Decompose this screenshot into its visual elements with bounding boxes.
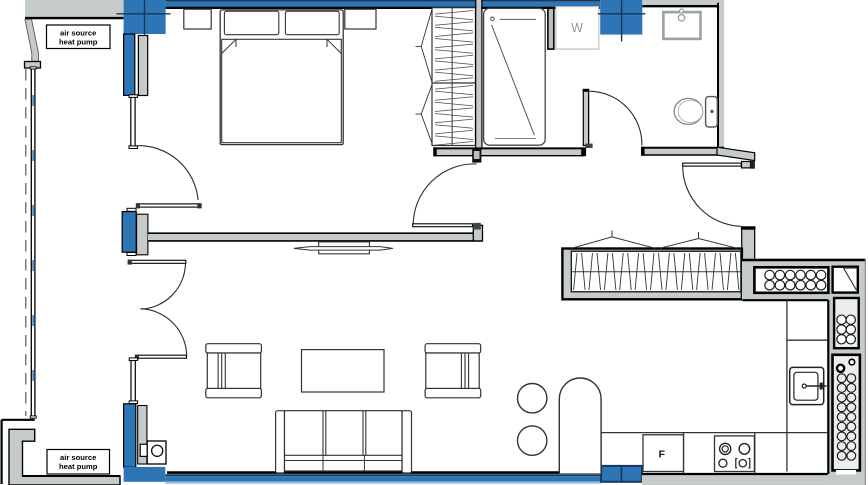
svg-text:heat pump: heat pump bbox=[59, 38, 98, 47]
svg-text:air source: air source bbox=[60, 29, 96, 38]
svg-text:heat pump: heat pump bbox=[59, 462, 98, 471]
svg-text:W: W bbox=[571, 21, 583, 35]
svg-text:air source: air source bbox=[60, 453, 96, 462]
svg-text:F: F bbox=[659, 449, 666, 461]
